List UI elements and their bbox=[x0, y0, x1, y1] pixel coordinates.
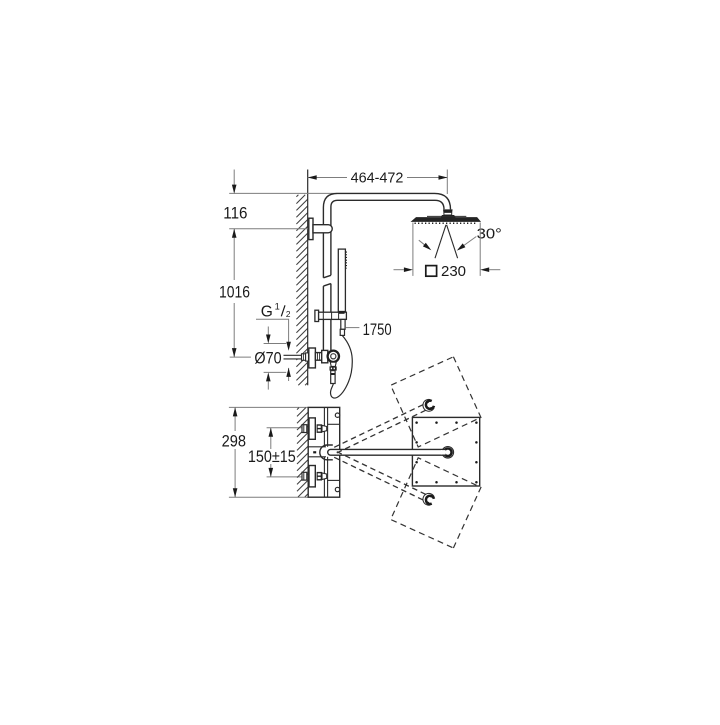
svg-text:150±15: 150±15 bbox=[248, 448, 296, 466]
svg-text:230: 230 bbox=[441, 263, 466, 280]
svg-text:2: 2 bbox=[286, 309, 291, 319]
svg-text:116: 116 bbox=[223, 204, 247, 222]
svg-text:1750: 1750 bbox=[363, 321, 392, 339]
svg-text:464-472: 464-472 bbox=[351, 171, 404, 187]
svg-text:298: 298 bbox=[222, 432, 246, 450]
svg-text:1016: 1016 bbox=[219, 284, 250, 302]
svg-text:1: 1 bbox=[275, 301, 280, 311]
svg-text:Ø70: Ø70 bbox=[254, 349, 281, 367]
svg-text:G: G bbox=[261, 303, 273, 320]
